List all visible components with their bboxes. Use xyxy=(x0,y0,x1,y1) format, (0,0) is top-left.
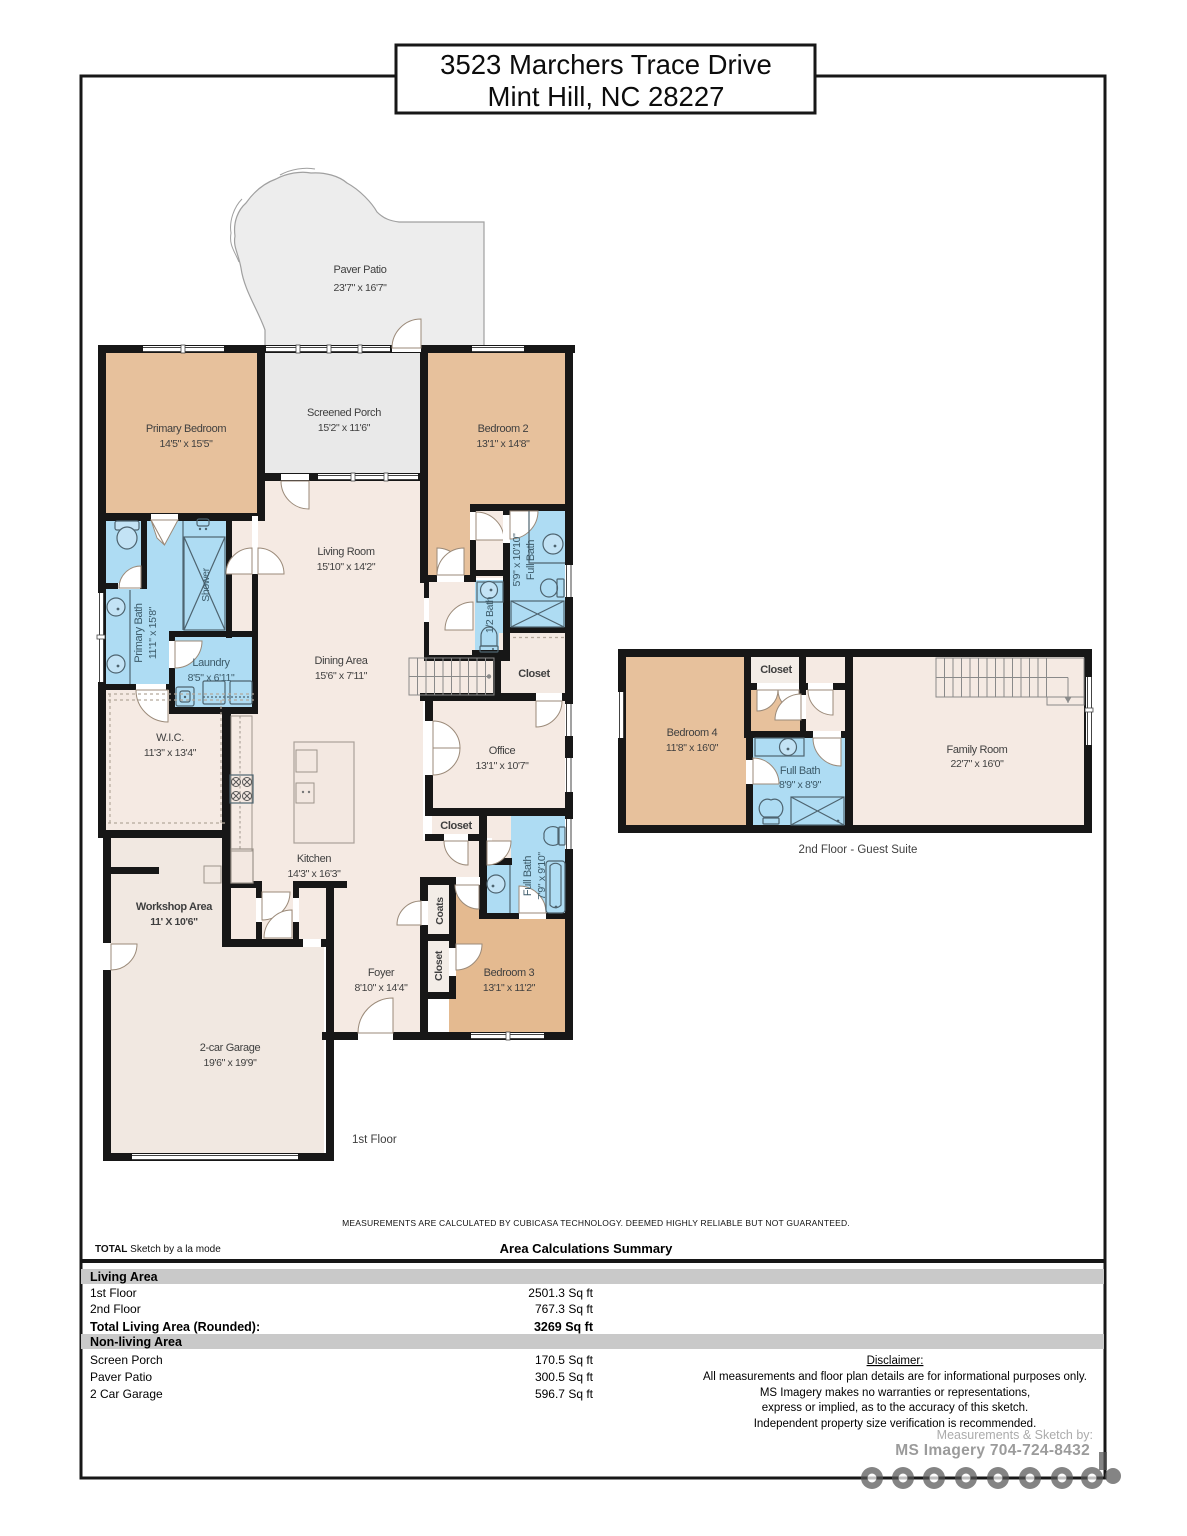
svg-text:Closet: Closet xyxy=(440,820,472,832)
svg-text:13'1" x 10'7": 13'1" x 10'7" xyxy=(475,760,529,772)
svg-text:MEASUREMENTS ARE CALCULATED BY: MEASUREMENTS ARE CALCULATED BY CUBICASA … xyxy=(342,1218,850,1228)
svg-text:Coats: Coats xyxy=(434,897,446,925)
svg-text:Foyer: Foyer xyxy=(368,967,395,979)
svg-text:MS Imagery makes no warranties: MS Imagery makes no warranties or repres… xyxy=(760,1387,1030,1399)
svg-text:TOTAL Sketch by a la mode: TOTAL Sketch by a la mode xyxy=(95,1244,221,1255)
svg-text:300.5 Sq ft: 300.5 Sq ft xyxy=(535,1370,594,1384)
svg-text:3269 Sq ft: 3269 Sq ft xyxy=(534,1320,594,1334)
svg-text:8'5" x 6'11": 8'5" x 6'11" xyxy=(188,672,235,684)
svg-text:23'7" x 16'7": 23'7" x 16'7" xyxy=(333,282,387,294)
svg-text:Disclaimer:: Disclaimer: xyxy=(867,1355,924,1367)
svg-text:1/2 Bath: 1/2 Bath xyxy=(484,596,496,633)
svg-text:8'10" x 14'4": 8'10" x 14'4" xyxy=(354,982,408,994)
svg-text:Closet: Closet xyxy=(433,950,445,981)
svg-text:2nd Floor - Guest Suite: 2nd Floor - Guest Suite xyxy=(799,844,918,856)
svg-text:Bedroom 3: Bedroom 3 xyxy=(484,967,535,979)
svg-text:Shower: Shower xyxy=(200,567,212,601)
svg-text:Bedroom 2: Bedroom 2 xyxy=(478,423,529,435)
svg-text:8'9" x 8'9": 8'9" x 8'9" xyxy=(779,779,822,791)
svg-text:22'7" x 16'0": 22'7" x 16'0" xyxy=(950,758,1004,770)
svg-text:3523 Marchers Trace Drive: 3523 Marchers Trace Drive xyxy=(440,49,772,80)
svg-text:Mint Hill, NC 28227: Mint Hill, NC 28227 xyxy=(488,81,725,112)
svg-text:Office: Office xyxy=(489,745,516,757)
svg-text:Screen Porch: Screen Porch xyxy=(90,1353,163,1367)
svg-text:Full Bath: Full Bath xyxy=(522,856,534,896)
svg-text:2-car Garage: 2-car Garage xyxy=(200,1042,261,1054)
svg-text:MS Imagery 704-724-8432: MS Imagery 704-724-8432 xyxy=(895,1442,1090,1459)
svg-text:Living Room: Living Room xyxy=(317,546,374,558)
svg-text:1st Floor: 1st Floor xyxy=(352,1134,397,1146)
svg-text:767.3 Sq ft: 767.3 Sq ft xyxy=(535,1302,594,1316)
svg-text:Workshop Area: Workshop Area xyxy=(136,901,213,913)
svg-text:2nd Floor: 2nd Floor xyxy=(90,1302,141,1316)
svg-text:Kitchen: Kitchen xyxy=(297,853,331,865)
svg-text:15'2" x 11'6": 15'2" x 11'6" xyxy=(318,422,371,434)
svg-text:W.I.C.: W.I.C. xyxy=(156,732,184,744)
svg-text:15'6" x 7'11": 15'6" x 7'11" xyxy=(315,670,368,682)
svg-text:14'5" x 15'5": 14'5" x 15'5" xyxy=(159,438,213,450)
svg-text:1st Floor: 1st Floor xyxy=(90,1286,137,1300)
svg-text:Measurements & Sketch by:: Measurements & Sketch by: xyxy=(937,1428,1093,1442)
svg-text:Full Bath: Full Bath xyxy=(525,540,537,580)
svg-text:11'8" x 16'0": 11'8" x 16'0" xyxy=(666,742,719,754)
svg-text:All measurements and floor pla: All measurements and floor plan details … xyxy=(703,1371,1087,1383)
svg-text:Total Living Area (Rounded):: Total Living Area (Rounded): xyxy=(90,1320,260,1334)
svg-text:Primary Bath: Primary Bath xyxy=(133,603,145,663)
svg-text:2 Car Garage: 2 Car Garage xyxy=(90,1387,163,1401)
svg-text:Bedroom 4: Bedroom 4 xyxy=(667,727,718,739)
svg-text:Living Area: Living Area xyxy=(90,1270,159,1284)
svg-text:Area Calculations Summary: Area Calculations Summary xyxy=(500,1241,673,1256)
svg-text:Closet: Closet xyxy=(760,664,792,676)
svg-text:11' X 10'6": 11' X 10'6" xyxy=(150,916,198,928)
svg-text:13'1" x 11'2": 13'1" x 11'2" xyxy=(483,982,536,994)
svg-text:Non-living Area: Non-living Area xyxy=(90,1335,183,1349)
svg-text:596.7 Sq ft: 596.7 Sq ft xyxy=(535,1387,594,1401)
svg-text:Paver Patio: Paver Patio xyxy=(333,264,386,276)
svg-text:Primary Bedroom: Primary Bedroom xyxy=(146,423,227,435)
svg-text:170.5 Sq ft: 170.5 Sq ft xyxy=(535,1353,594,1367)
svg-text:19'6" x 19'9": 19'6" x 19'9" xyxy=(203,1057,257,1069)
svg-text:14'3" x 16'3": 14'3" x 16'3" xyxy=(287,868,341,880)
svg-text:Closet: Closet xyxy=(518,668,550,680)
svg-text:Dining Area: Dining Area xyxy=(314,655,368,667)
svg-text:Laundry: Laundry xyxy=(192,657,230,669)
svg-text:11'1" x 15'8": 11'1" x 15'8" xyxy=(147,606,159,659)
svg-text:11'3" x 13'4": 11'3" x 13'4" xyxy=(144,747,197,759)
svg-text:15'10" x 14'2": 15'10" x 14'2" xyxy=(317,561,376,573)
svg-text:2501.3 Sq ft: 2501.3 Sq ft xyxy=(528,1286,593,1300)
svg-text:7'9" x 9'10": 7'9" x 9'10" xyxy=(536,852,548,900)
svg-text:Screened Porch: Screened Porch xyxy=(307,407,381,419)
svg-text:13'1" x 14'8": 13'1" x 14'8" xyxy=(476,438,530,450)
svg-text:5'9" x 10'10": 5'9" x 10'10" xyxy=(511,533,523,587)
svg-text:express or implied, as to the: express or implied, as to the accuracy o… xyxy=(762,1402,1029,1414)
svg-text:Full Bath: Full Bath xyxy=(780,765,820,777)
svg-text:Family Room: Family Room xyxy=(947,744,1008,756)
svg-text:Paver Patio: Paver Patio xyxy=(90,1370,152,1384)
